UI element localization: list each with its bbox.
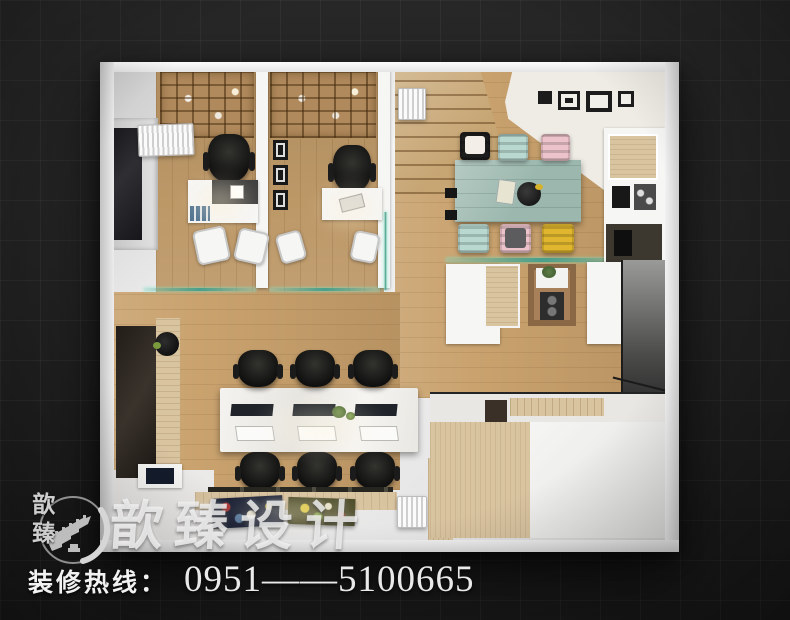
meeting-chair-mint — [458, 224, 489, 253]
side-chair — [445, 188, 457, 198]
paper — [230, 185, 244, 199]
picture-frame-icon — [273, 190, 288, 210]
glass-partition — [144, 288, 256, 291]
meeting-table — [455, 160, 581, 222]
hotline-label: 装修热线： — [28, 563, 168, 599]
kitchenette — [604, 128, 665, 266]
plant-leaf — [153, 342, 161, 349]
fruit — [535, 184, 543, 190]
meeting-chair-black — [460, 132, 490, 160]
cabinet-mid — [528, 264, 576, 326]
brand-calligraphy-text: 歆臻设计 — [107, 484, 372, 560]
office2-frames-column — [273, 140, 288, 212]
floorplan-render — [100, 62, 679, 552]
picture-frame-icon — [558, 91, 580, 110]
workstation-chair — [295, 350, 335, 387]
shelf-wood — [484, 264, 520, 328]
wall-left — [100, 62, 114, 552]
office1-desk — [188, 180, 258, 223]
office1-guest-chair — [192, 225, 232, 266]
laptop-icon — [235, 426, 275, 441]
radiator-left — [137, 123, 194, 157]
coffee-machine-icon — [614, 230, 632, 256]
office2-chair — [333, 145, 371, 192]
picture-frame-icon — [538, 91, 552, 104]
magazine — [495, 179, 516, 205]
plant-icon — [346, 412, 355, 420]
plant-icon — [332, 406, 346, 418]
wall-right — [665, 62, 679, 552]
meeting-chair-pink — [500, 224, 531, 253]
counter-wood-tray — [510, 398, 604, 416]
picture-frame-icon — [618, 91, 634, 107]
picture-frame-icon — [586, 91, 612, 112]
office2-desk — [322, 188, 382, 220]
reception-platform — [530, 422, 665, 538]
open-shelf — [608, 134, 658, 180]
glass-partition — [270, 288, 380, 291]
workstation-desk — [220, 388, 418, 452]
cabinet-white-b — [587, 262, 621, 344]
cushion — [505, 228, 526, 248]
office1-chair — [208, 134, 250, 182]
hotline-number: 0951——5100665 — [184, 558, 475, 601]
tablet-screen — [146, 468, 174, 484]
cushion — [465, 136, 485, 154]
entry-corridor-floor — [621, 260, 665, 394]
glass-partition — [384, 212, 387, 290]
monitor-icon — [354, 404, 397, 416]
cooktop-icon — [634, 184, 656, 210]
meeting-chair-yellow — [542, 224, 574, 253]
radiator-top — [398, 88, 426, 120]
workstation-chair — [238, 350, 278, 387]
workstation-chair — [353, 350, 393, 387]
picture-frame-icon — [273, 140, 288, 160]
wall-top — [100, 62, 679, 72]
monitor-icon — [292, 404, 335, 416]
meeting-chair-mint — [498, 134, 528, 161]
hotline-row: 装修热线： 0951——5100665 — [28, 558, 475, 601]
side-chair — [445, 210, 457, 220]
oven-icon — [612, 186, 630, 208]
picture-frame-icon — [273, 165, 288, 185]
office2-shelf-grid — [270, 72, 376, 138]
logo-vertical-characters: 歆臻 — [27, 492, 56, 550]
meeting-chair-pink — [541, 134, 570, 161]
reception-counter — [430, 392, 665, 422]
media-wall-glass — [116, 326, 156, 478]
reception-desk-wood — [430, 422, 530, 538]
books — [190, 206, 210, 221]
radiator-bottom — [397, 496, 427, 528]
monitor-icon — [230, 404, 273, 416]
laptop-icon — [359, 426, 399, 441]
laptop-icon — [297, 426, 337, 441]
wall-clock-decor — [155, 332, 179, 356]
sink-icon — [540, 292, 564, 320]
wall-frames-row — [538, 91, 634, 112]
laptop-icon — [339, 193, 366, 212]
counter-box — [485, 400, 507, 422]
plant-icon — [542, 266, 556, 278]
poster-canvas: { "watermark": { "logo_chars": "歆臻", "br… — [0, 0, 790, 620]
